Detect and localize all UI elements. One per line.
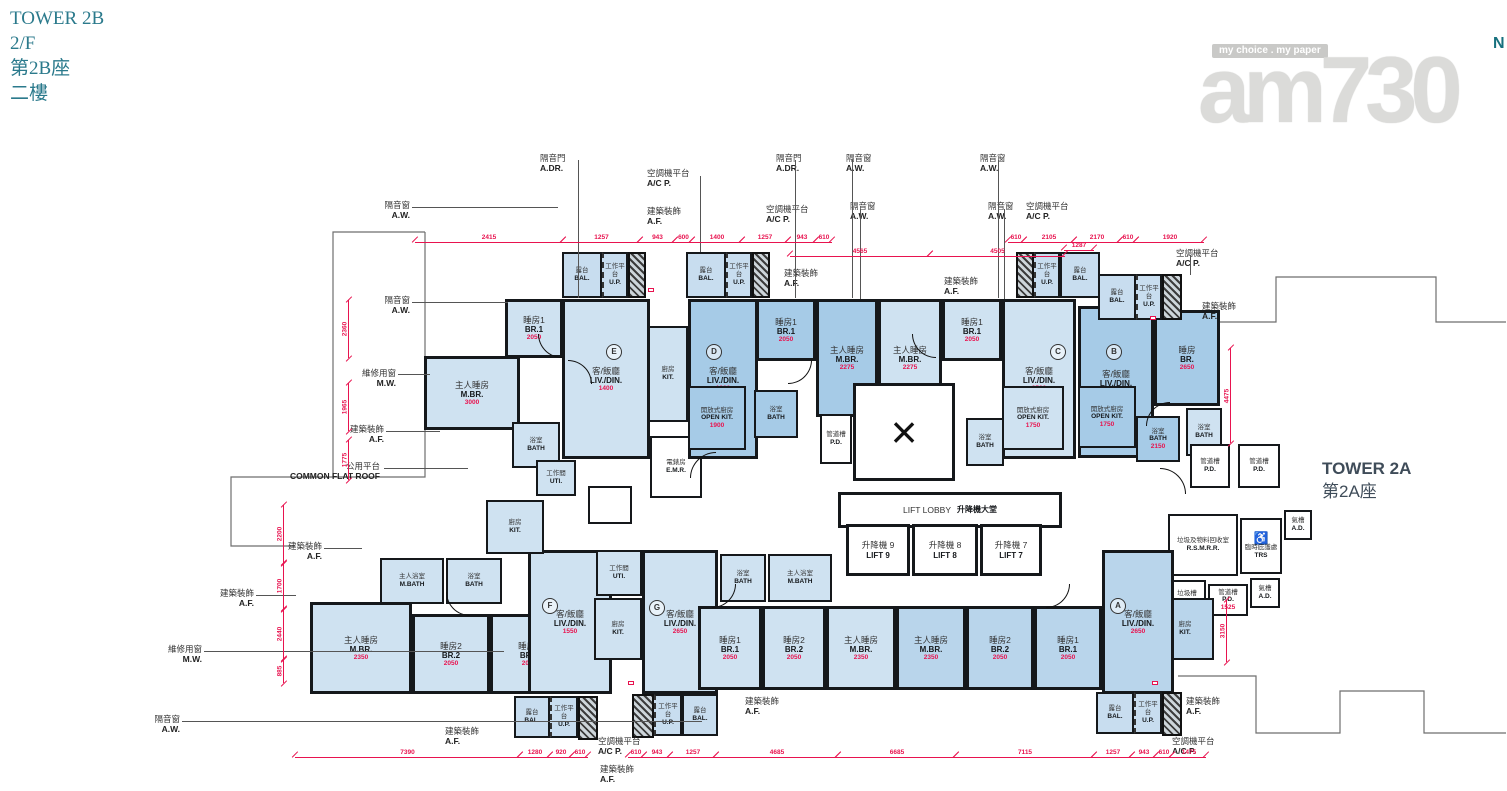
dimension-value: 1257: [1106, 750, 1120, 757]
room-label-en: M.BATH: [788, 578, 813, 585]
door-swing: [1046, 584, 1070, 608]
room-label-zh: 升降機 7: [995, 540, 1028, 550]
room-label-en: A.D.: [1292, 525, 1305, 532]
room: 主人睡房 M.BR. 2350: [310, 602, 412, 694]
perimeter-callout: 空調機平台 A/C P.: [1176, 248, 1219, 268]
room: 工作平台 U.P.: [726, 252, 752, 298]
callout-en: A.F.: [600, 774, 634, 784]
callout-en: A.F.: [1202, 311, 1236, 321]
room: 管道槽 P.D.: [1238, 444, 1280, 488]
room: [853, 383, 955, 481]
room-label-zh: 睡房2: [989, 635, 1011, 645]
room-label-en: M.BR.: [461, 390, 484, 399]
room-label-en: KIT.: [1179, 629, 1191, 636]
leader-line: [852, 160, 853, 298]
room: 主人浴室 M.BATH: [380, 558, 444, 604]
room-label-en: LIFT 8: [933, 551, 957, 560]
door-swing: [788, 360, 812, 384]
room-label-en: KIT.: [662, 374, 674, 381]
tower-2a-label: TOWER 2A 第2A座: [1322, 458, 1411, 504]
dimension-line-h: 7390: [295, 757, 520, 758]
unit-letter-badge: B: [1106, 344, 1122, 360]
room-label-zh: 睡房1: [1057, 635, 1079, 645]
dimension-line-h: 943: [640, 242, 675, 243]
callout-zh: 維修用窗: [168, 644, 202, 654]
room-label-en: 升降機大堂: [957, 505, 997, 514]
dimension-value: 6685: [890, 750, 904, 757]
room-dimension: 1525: [1221, 605, 1235, 612]
room-label-en: BATH: [734, 578, 752, 585]
room-label-zh: 升降機 8: [929, 540, 962, 550]
dimension-value: 600: [678, 235, 689, 242]
room: 睡房2 BR.2 2050: [412, 614, 490, 694]
plan-title: TOWER 2B 2/F 第2B座 二樓: [10, 6, 104, 106]
leader-line: [795, 160, 796, 298]
callout-en: A.F.: [1186, 706, 1220, 716]
room: 睡房1 BR.1 2050: [698, 606, 762, 690]
room-label-zh: 露台: [1111, 289, 1124, 297]
callout-zh: 建築裝飾: [288, 541, 322, 551]
unit-letter-badge: A: [1110, 598, 1126, 614]
dimension-value: 1287: [1072, 243, 1086, 250]
dimension-line-h: 1920: [1136, 242, 1204, 243]
ac-platform-hatch: [1162, 692, 1182, 736]
leader-line: [412, 207, 558, 208]
room-label-en: UTI.: [613, 573, 625, 580]
callout-zh: 隔音窗: [846, 153, 872, 163]
room: 睡房2 BR.2 2050: [966, 606, 1034, 690]
ac-platform-hatch: [1162, 274, 1182, 320]
callout-zh: 隔音窗: [850, 201, 876, 211]
callout-en: A.F.: [745, 706, 779, 716]
room-label-zh: 工作平台: [656, 703, 680, 719]
room-label-zh: 垃圾及物料回收室: [1177, 537, 1229, 545]
dimension-value: 1700: [277, 579, 284, 593]
dimension-value: 2170: [1090, 235, 1104, 242]
room: 睡房 BR. 2650: [1154, 310, 1220, 406]
dimension-line-h: 610: [816, 242, 832, 243]
room-label-en: BR.1: [777, 327, 795, 336]
room: 露台 BAL.: [562, 252, 602, 298]
callout-en: A/C P.: [1026, 211, 1069, 221]
perimeter-callout: 空調機平台 A/C P.: [1026, 201, 1069, 221]
unit-letter: E: [611, 348, 616, 356]
dimension-label: [1152, 681, 1158, 685]
room-dimension: 2350: [854, 655, 868, 662]
room-label-en: P.D.: [1204, 466, 1216, 473]
room-label-zh: 工作平台: [1138, 285, 1160, 301]
room-label-zh: 管道槽: [826, 431, 846, 439]
dimension-line-v: 2440: [283, 609, 284, 659]
room-label-zh: 主人睡房: [914, 635, 948, 645]
room: 廚房 KIT.: [594, 598, 642, 660]
room-label-zh: 客/飯廳: [666, 609, 694, 619]
room-dimension: 2050: [993, 655, 1007, 662]
perimeter-callout: 建築裝飾 A.F.: [220, 588, 254, 608]
dimension-value: 4475: [1224, 388, 1231, 402]
callout-en: A.DR.: [540, 163, 566, 173]
room-dimension: 2350: [354, 655, 368, 662]
room-label-zh: 露台: [694, 707, 707, 715]
dimension-line-v: 885: [283, 659, 284, 683]
dimension-line-h: 4685: [716, 757, 838, 758]
callout-zh: 公用平台: [346, 461, 380, 471]
dimension-value: 610: [631, 750, 642, 757]
callout-zh: 空調機平台: [1172, 736, 1215, 746]
leader-line: [386, 431, 440, 432]
room-label-en: UTI.: [550, 478, 562, 485]
room-label-zh: 工作平台: [1036, 263, 1058, 279]
room: [588, 486, 632, 524]
room: 氣槽 A.D.: [1284, 510, 1312, 540]
room: 管道槽 P.D. 1525: [1208, 584, 1248, 616]
callout-en: A.W.: [988, 211, 1014, 221]
room-label-en: M.BR.: [350, 645, 373, 654]
room: 主人睡房 M.BR. 2350: [896, 606, 966, 690]
room-label-zh: 主人睡房: [844, 635, 878, 645]
room-label-en: BR.1: [1059, 645, 1077, 654]
dimension-value: 610: [1011, 235, 1022, 242]
room-label-en: BAL.: [1072, 275, 1087, 282]
callout-en: A.W.: [850, 211, 876, 221]
perimeter-callout: 建築裝飾 A.F.: [647, 206, 681, 226]
callout-en: A/C P.: [766, 214, 809, 224]
perimeter-callout: 建築裝飾 A.F.: [445, 726, 479, 746]
room-label-zh: 垃圾槽: [1177, 590, 1197, 598]
dimension-value: 4565: [853, 249, 867, 256]
dimension-value: 1775: [342, 453, 349, 467]
room-label-zh: 工作平台: [604, 263, 626, 279]
room-label-en: A.D.: [1259, 593, 1272, 600]
callout-zh: 隔音窗: [154, 714, 180, 724]
callout-en: A.F.: [288, 551, 322, 561]
room-label-zh: 電錶房: [666, 459, 686, 467]
room-dimension: 2650: [673, 629, 687, 636]
unit-letter-badge: E: [606, 344, 622, 360]
room-label-en: U.P.: [609, 279, 621, 286]
dimension-line-h: 6685: [838, 757, 956, 758]
door-swing: [446, 592, 470, 616]
unit-letter: A: [1115, 602, 1121, 610]
room-label-zh: 客/飯廳: [709, 366, 737, 376]
room-label-en: BR.2: [442, 651, 460, 660]
dimension-value: 610: [1159, 750, 1170, 757]
callout-en: A.F.: [647, 216, 681, 226]
leader-line: [1190, 255, 1191, 275]
room: 工作平台 U.P.: [1034, 252, 1060, 298]
room-label-en: BATH: [1195, 432, 1213, 439]
room-dimension: 1750: [1100, 422, 1114, 429]
room-label-en: TRS: [1255, 552, 1268, 559]
room-label-en: BAL.: [1109, 297, 1124, 304]
room-label-en: M.BR.: [920, 645, 943, 654]
leader-line: [398, 374, 430, 375]
room: 露台 BAL.: [1096, 692, 1134, 734]
room-label-en: BAL.: [574, 275, 589, 282]
room-label-zh: 客/飯廳: [1025, 366, 1053, 376]
callout-zh: 隔音窗: [384, 295, 410, 305]
leader-line: [412, 302, 508, 303]
room-label-en: BR.2: [785, 645, 803, 654]
callout-en: A.W.: [154, 724, 180, 734]
room: 廚房 KIT.: [486, 500, 544, 554]
dimension-line-h: 1400: [692, 242, 742, 243]
room-label-zh: 露台: [1074, 267, 1087, 275]
perimeter-callout: 隔音窗 A.W.: [988, 201, 1014, 221]
room-dimension: 2275: [903, 365, 917, 372]
room-label-zh: 氣槽: [1292, 517, 1305, 525]
perimeter-callout: 隔音窗 A.W.: [846, 153, 872, 173]
room-label-zh: 露台: [526, 709, 539, 717]
room: ♿ 臨時庇護處 TRS: [1240, 518, 1282, 574]
room-dimension: 2050: [787, 655, 801, 662]
leader-line: [324, 548, 362, 549]
room: 開放式廚房 OPEN KIT. 1750: [1078, 386, 1136, 448]
room-label-zh: 氣槽: [1259, 585, 1272, 593]
room-label-en: OPEN KIT.: [701, 414, 733, 421]
room-label-zh: 客/飯廳: [556, 609, 584, 619]
room-label-zh: 主人睡房: [830, 345, 864, 355]
room-label-en: P.D.: [1253, 466, 1265, 473]
callout-zh: 空調機平台: [1176, 248, 1219, 258]
callout-zh: 隔音窗: [988, 201, 1014, 211]
dimension-line-v: 1775: [348, 440, 349, 480]
perimeter-callout: 隔音窗 A.W.: [980, 153, 1006, 173]
am730-logo: am730: [1198, 50, 1478, 130]
room-label-en: BR.1: [963, 327, 981, 336]
callout-en: A.F.: [784, 278, 818, 288]
dimension-value: 7115: [1018, 750, 1032, 757]
dimension-value: 610: [819, 235, 830, 242]
dimension-line-v: 2200: [283, 505, 284, 563]
room-label-en: M.BATH: [400, 581, 425, 588]
room-label-zh: 廚房: [662, 366, 675, 374]
leader-line: [204, 651, 504, 652]
callout-en: COMMON FLAT ROOF: [290, 471, 380, 481]
callout-zh: 建築裝飾: [445, 726, 479, 736]
dimension-value: 2440: [277, 627, 284, 641]
room-label-zh: 睡房: [1178, 345, 1195, 355]
dimension-line-v: 1965: [348, 383, 349, 431]
callout-zh: 隔音窗: [980, 153, 1006, 163]
callout-zh: 建築裝飾: [220, 588, 254, 598]
ac-platform-hatch: [628, 252, 646, 298]
perimeter-callout: 維修用窗 M.W.: [168, 644, 202, 664]
room-label-zh: 睡房1: [961, 317, 983, 327]
callout-en: A.DR.: [776, 163, 802, 173]
room-label-zh: 睡房1: [523, 315, 545, 325]
room-dimension: 1900: [710, 423, 724, 430]
callout-zh: 維修用窗: [362, 368, 396, 378]
dimension-line-h: 1257: [742, 242, 788, 243]
room: 廚房 KIT.: [648, 326, 688, 422]
callout-zh: 建築裝飾: [647, 206, 681, 216]
room: 客/飯廳 LIV./DIN. 2650: [1102, 550, 1174, 694]
room-label-zh: 廚房: [612, 621, 625, 629]
room-dimension: 1750: [1026, 423, 1040, 430]
room-label-zh: 工作平台: [552, 705, 576, 721]
dimension-line-h: 2415: [415, 242, 563, 243]
room: 升降機 7 LIFT 7: [980, 524, 1042, 576]
perimeter-callout: 隔音窗 A.W.: [384, 295, 410, 315]
callout-en: M.W.: [362, 378, 396, 388]
room: 氣槽 A.D.: [1250, 578, 1280, 608]
title-tower-zh: 第2B座: [10, 56, 104, 81]
dimension-line-h: 1257: [1094, 757, 1132, 758]
callout-en: A/C P.: [1176, 258, 1219, 268]
room: 主人睡房 M.BR. 2350: [826, 606, 896, 690]
perimeter-callout: 空調機平台 A/C P.: [647, 168, 690, 188]
unit-letter: D: [711, 348, 717, 356]
callout-zh: 隔音門: [540, 153, 566, 163]
callout-en: A.F.: [350, 434, 384, 444]
room-label-zh: 工作間: [546, 470, 566, 478]
unit-letter: B: [1111, 348, 1117, 356]
room-label-zh: 工作平台: [1136, 701, 1160, 717]
dimension-label: [628, 681, 634, 685]
room-label-zh: 開放式廚房: [1017, 407, 1050, 415]
room-label-zh: 開放式廚房: [1091, 406, 1124, 414]
room-label-zh: 浴室: [737, 570, 750, 578]
dimension-line-h: 1475: [1172, 757, 1206, 758]
tower-2a-zh: 第2A座: [1322, 481, 1411, 504]
dimension-line-h: 2170: [1074, 242, 1120, 243]
room: 升降機 8 LIFT 8: [912, 524, 978, 576]
callout-zh: 建築裝飾: [1186, 696, 1220, 706]
room-dimension: 3000: [465, 400, 479, 407]
dimension-value: 4685: [770, 750, 784, 757]
room-label-en: LIV./DIN.: [664, 619, 696, 628]
room-label-zh: 睡房1: [719, 635, 741, 645]
perimeter-callout: 隔音門 A.DR.: [540, 153, 566, 173]
am730-watermark: my choice . my paper am730: [1198, 40, 1478, 130]
room-dimension: 2650: [1131, 629, 1145, 636]
room-label-en: U.P.: [1143, 301, 1155, 308]
dimension-value: 1257: [758, 235, 772, 242]
room-label-en: LIV./DIN.: [590, 376, 622, 385]
perimeter-callout: 建築裝飾 A.F.: [1186, 696, 1220, 716]
dimension-value: 1475: [1182, 750, 1196, 757]
dimension-line-h: 1257: [670, 757, 716, 758]
room: 工作平台 U.P.: [602, 252, 628, 298]
callout-zh: 隔音門: [776, 153, 802, 163]
room-label-zh: 廚房: [509, 519, 522, 527]
dimension-value: 7390: [400, 750, 414, 757]
leader-line: [700, 176, 701, 252]
dimension-value: 2200: [277, 527, 284, 541]
perimeter-callout: 隔音窗 A.W.: [384, 200, 410, 220]
perimeter-callout: 建築裝飾 A.F.: [784, 268, 818, 288]
room-label-zh: 睡房2: [783, 635, 805, 645]
dimension-value: 1965: [342, 400, 349, 414]
dimension-value: 1257: [594, 235, 608, 242]
room-label-en: LIFT 9: [866, 551, 890, 560]
room-label-en: R.S.M.R.R.: [1187, 545, 1220, 552]
callout-zh: 建築裝飾: [350, 424, 384, 434]
dimension-value: 1920: [1163, 235, 1177, 242]
room-dimension: 2350: [924, 655, 938, 662]
room-label-en: LIV./DIN.: [1122, 619, 1154, 628]
room-label-en: LIV./DIN.: [1023, 376, 1055, 385]
room: 浴室 BATH: [754, 390, 798, 438]
leader-line: [182, 721, 702, 722]
room-label-zh: 客/飯廳: [1102, 369, 1130, 379]
leader-line: [384, 468, 468, 469]
room-label-zh: 工作平台: [728, 263, 750, 279]
room: 露台 BAL.: [682, 694, 718, 736]
dimension-line-h: 2105: [1024, 242, 1074, 243]
callout-en: A.W.: [980, 163, 1006, 173]
room-label-en: LIFT 7: [999, 551, 1023, 560]
dimension-value: 610: [1123, 235, 1134, 242]
room-label-en: BATH: [527, 445, 545, 452]
dimension-line-v: 2360: [348, 300, 349, 358]
room: 工作間 UTI.: [536, 460, 576, 496]
dimension-line-h: 1287: [1064, 250, 1094, 251]
dimension-value: 1400: [710, 235, 724, 242]
room: 露台 BAL.: [686, 252, 726, 298]
ac-platform-hatch: [578, 696, 598, 740]
room-label-zh: 浴室: [1152, 428, 1165, 436]
unit-letter-badge: C: [1050, 344, 1066, 360]
dimension-value: 920: [556, 750, 567, 757]
room-label-en: BAL.: [1107, 713, 1122, 720]
room-label-zh: 主人睡房: [344, 635, 378, 645]
unit-letter: C: [1055, 348, 1061, 356]
ac-platform-hatch: [1016, 252, 1034, 298]
dimension-value: 943: [652, 750, 663, 757]
room-label-en: LIV./DIN.: [707, 376, 739, 385]
room-dimension: 2150: [1151, 444, 1165, 451]
common-flat-roof-outline: [231, 232, 425, 546]
room-dimension: 2050: [779, 337, 793, 344]
perimeter-callout: 建築裝飾 A.F.: [944, 276, 978, 296]
room: 露台 BAL.: [514, 696, 550, 738]
room: 露台 BAL.: [1098, 274, 1136, 320]
callout-zh: 建築裝飾: [784, 268, 818, 278]
room-label-en: KIT.: [612, 629, 624, 636]
room-label-zh: 開放式廚房: [701, 407, 734, 415]
room: 垃圾及物料回收室 R.S.M.R.R.: [1168, 514, 1238, 576]
room-label-zh: 客/飯廳: [592, 366, 620, 376]
room: 工作平台 U.P.: [550, 696, 578, 738]
room-label-zh: 主人浴室: [399, 573, 425, 581]
door-swing: [1160, 468, 1186, 494]
callout-en: M.W.: [168, 654, 202, 664]
unit-letter: F: [548, 602, 553, 610]
room-label-en: E.M.R.: [666, 467, 686, 474]
perimeter-callout: 隔音窗 A.W.: [154, 714, 180, 734]
room-label-zh: 升降機 9: [862, 540, 895, 550]
room-label-en: U.P.: [558, 721, 570, 728]
room: 浴室 BATH: [966, 418, 1004, 466]
title-floor-zh: 二樓: [10, 81, 104, 106]
room-label-zh: 浴室: [979, 434, 992, 442]
room-label-en: U.P.: [1041, 279, 1053, 286]
room: 睡房1 BR.1 2050: [756, 299, 816, 361]
tower-2a-en: TOWER 2A: [1322, 458, 1411, 481]
north-indicator: N: [1493, 36, 1505, 52]
dimension-line-h: 4565: [790, 256, 930, 257]
callout-en: A.W.: [846, 163, 872, 173]
dimension-value: 610: [575, 750, 586, 757]
room-dimension: 2275: [840, 365, 854, 372]
perimeter-callout: 建築裝飾 A.F.: [745, 696, 779, 716]
perimeter-callout: 維修用窗 M.W.: [362, 368, 396, 388]
room-label-zh: 浴室: [770, 406, 783, 414]
room: 睡房2 BR.2 2050: [762, 606, 826, 690]
room-dimension: 1400: [599, 386, 613, 393]
